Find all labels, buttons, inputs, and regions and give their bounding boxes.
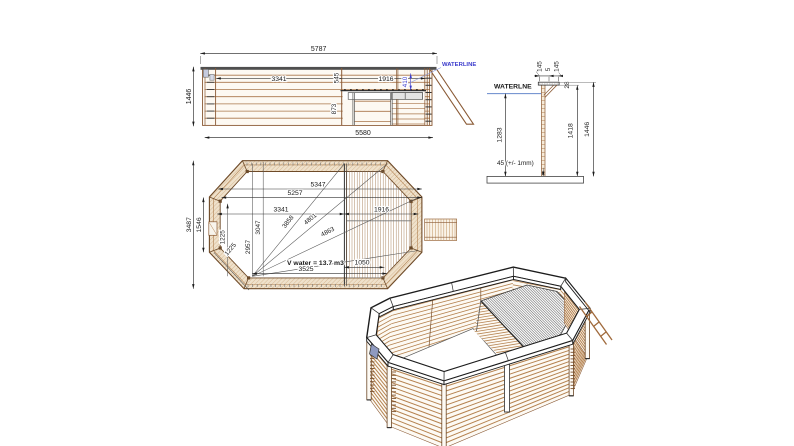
svg-text:3487: 3487 bbox=[186, 217, 193, 232]
svg-text:3341: 3341 bbox=[273, 206, 288, 213]
svg-text:5580: 5580 bbox=[355, 130, 371, 137]
svg-text:1050: 1050 bbox=[354, 260, 369, 267]
svg-text:1446: 1446 bbox=[186, 89, 193, 105]
svg-text:1916: 1916 bbox=[374, 206, 389, 213]
svg-text:1446: 1446 bbox=[584, 122, 591, 137]
svg-text:WATERLINE: WATERLINE bbox=[442, 62, 476, 68]
svg-text:545: 545 bbox=[334, 72, 341, 83]
svg-text:145: 145 bbox=[554, 61, 561, 72]
svg-text:1916: 1916 bbox=[378, 76, 393, 83]
svg-text:5787: 5787 bbox=[311, 46, 327, 53]
svg-text:1283: 1283 bbox=[497, 127, 504, 142]
svg-text:145: 145 bbox=[536, 61, 543, 72]
svg-text:1225: 1225 bbox=[220, 230, 227, 245]
svg-text:5: 5 bbox=[545, 67, 552, 71]
svg-text:3525: 3525 bbox=[298, 266, 313, 273]
svg-text:410: 410 bbox=[402, 76, 409, 87]
svg-text:1418: 1418 bbox=[568, 123, 575, 138]
svg-text:2957: 2957 bbox=[245, 239, 252, 254]
svg-text:3047: 3047 bbox=[255, 220, 262, 235]
svg-text:3341: 3341 bbox=[271, 76, 286, 83]
svg-text:873: 873 bbox=[331, 103, 338, 114]
svg-text:V water = 13.7 m3: V water = 13.7 m3 bbox=[287, 260, 344, 267]
svg-text:WATERLNE: WATERLNE bbox=[494, 83, 532, 90]
svg-text:1546: 1546 bbox=[196, 217, 203, 232]
svg-text:5257: 5257 bbox=[287, 190, 302, 197]
svg-text:45 (+/- 1mm): 45 (+/- 1mm) bbox=[497, 160, 534, 167]
svg-text:5347: 5347 bbox=[310, 181, 325, 188]
